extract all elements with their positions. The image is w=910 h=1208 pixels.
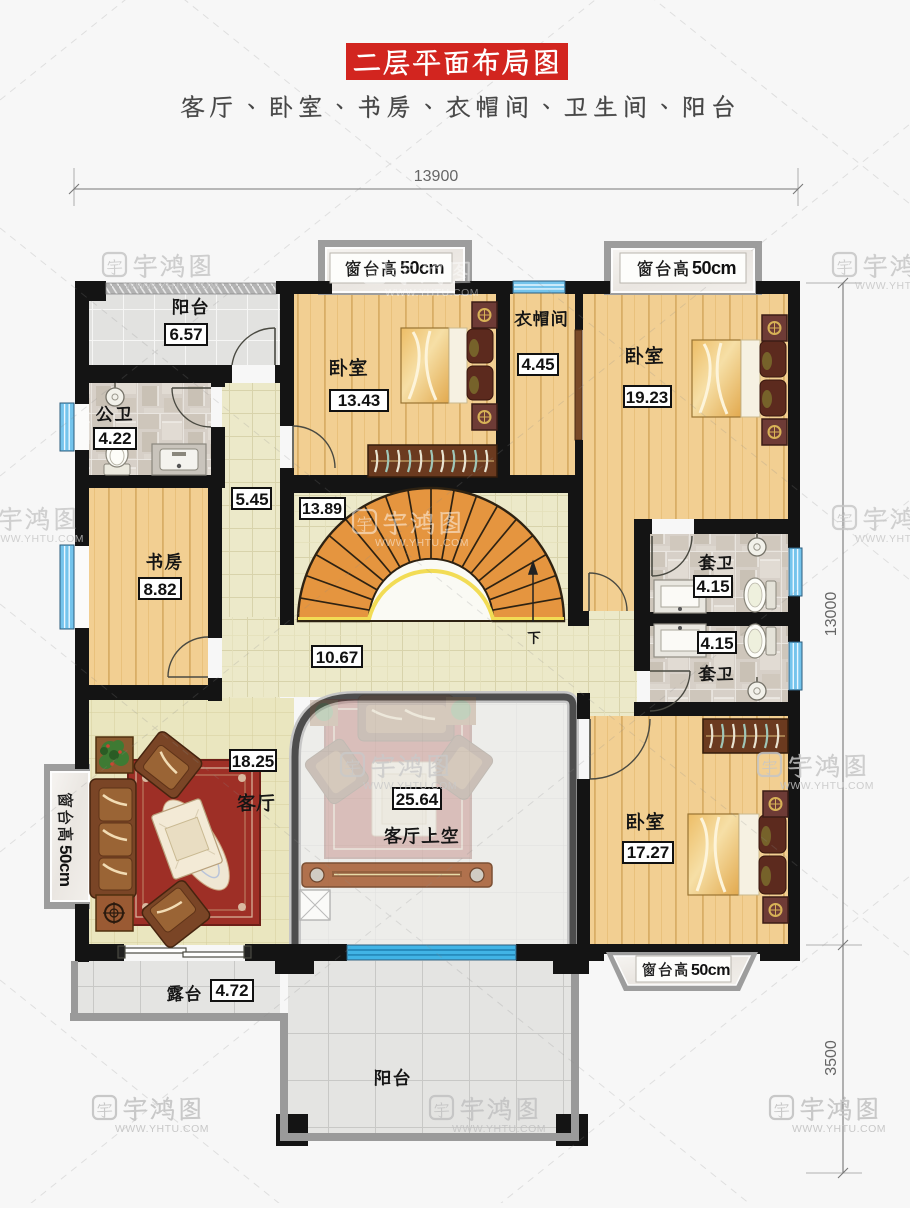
- svg-text:WWW.YHTU.COM: WWW.YHTU.COM: [780, 780, 874, 792]
- svg-text:WWW.YHTU.COM: WWW.YHTU.COM: [125, 280, 219, 292]
- svg-text:13900: 13900: [414, 168, 459, 185]
- svg-text:10.67: 10.67: [316, 648, 359, 667]
- svg-text:WWW.YHTU.COM: WWW.YHTU.COM: [452, 1123, 546, 1135]
- svg-text:5.45: 5.45: [235, 490, 268, 509]
- svg-text:8.82: 8.82: [143, 580, 176, 599]
- svg-text:WWW.YHTU.COM: WWW.YHTU.COM: [792, 1123, 886, 1135]
- svg-text:17.27: 17.27: [627, 843, 670, 862]
- svg-text:6.57: 6.57: [169, 325, 202, 344]
- svg-text:50cm: 50cm: [691, 962, 730, 979]
- svg-text:3500: 3500: [823, 1040, 840, 1076]
- svg-text:4.22: 4.22: [98, 429, 131, 448]
- svg-text:WWW.YHTU.COM: WWW.YHTU.COM: [855, 533, 910, 545]
- svg-text:18.25: 18.25: [232, 752, 275, 771]
- svg-text:WWW.YHTU.COM: WWW.YHTU.COM: [375, 537, 469, 549]
- svg-text:25.64: 25.64: [396, 790, 439, 809]
- svg-text:13.89: 13.89: [302, 501, 342, 518]
- svg-text:13.43: 13.43: [338, 391, 381, 410]
- svg-text:WWW.YHTU.COM: WWW.YHTU.COM: [385, 287, 479, 299]
- svg-text:19.23: 19.23: [626, 388, 669, 407]
- svg-text:WWW.YHTU.COM: WWW.YHTU.COM: [0, 533, 84, 545]
- svg-text:4.15: 4.15: [700, 634, 733, 653]
- svg-text:50cm: 50cm: [56, 845, 75, 887]
- svg-text:4.15: 4.15: [696, 577, 729, 596]
- svg-text:WWW.YHTU.COM: WWW.YHTU.COM: [363, 780, 457, 792]
- svg-text:13000: 13000: [823, 592, 840, 637]
- svg-text:WWW.YHTU.COM: WWW.YHTU.COM: [855, 280, 910, 292]
- svg-text:50cm: 50cm: [692, 258, 736, 278]
- svg-text:4.72: 4.72: [215, 981, 248, 1000]
- svg-text:WWW.YHTU.COM: WWW.YHTU.COM: [115, 1123, 209, 1135]
- svg-text:4.45: 4.45: [521, 355, 554, 374]
